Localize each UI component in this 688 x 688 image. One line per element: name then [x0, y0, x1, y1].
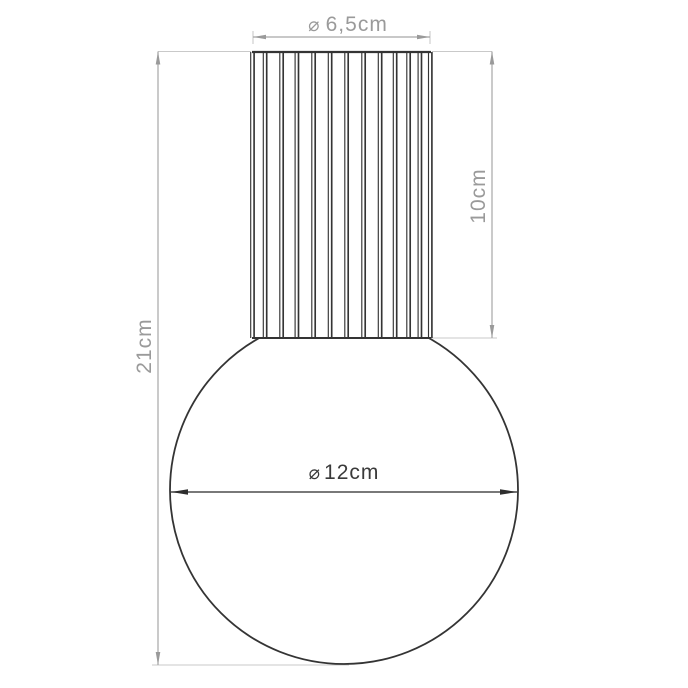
- shade-body-mask: [251, 44, 432, 337]
- arrow-bottom-shade-height: [490, 325, 495, 338]
- diameter-symbol: ⌀: [308, 14, 320, 36]
- label-shade-diameter: ⌀6,5cm: [308, 13, 388, 36]
- label-globe-diameter-value: 12cm: [324, 461, 379, 484]
- arrow-right-globe-diameter: [500, 489, 517, 495]
- label-total-height: 21cm: [133, 318, 156, 373]
- label-shade-height: 10cm: [467, 168, 490, 223]
- label-globe-diameter: ⌀12cm: [309, 461, 380, 484]
- technical-drawing-canvas: ⌀6,5cm 10cm 21cm ⌀12cm: [0, 0, 688, 688]
- arrow-right-shade-diameter: [417, 35, 430, 40]
- globe-outline: [170, 316, 518, 664]
- arrow-left-globe-diameter: [171, 489, 188, 495]
- lamp-dimension-drawing: ⌀6,5cm 10cm 21cm ⌀12cm: [0, 0, 688, 688]
- arrow-top-total-height: [156, 52, 161, 65]
- arrow-top-shade-height: [490, 52, 495, 65]
- arrow-left-shade-diameter: [253, 35, 266, 40]
- label-shade-diameter-value: 6,5cm: [326, 13, 388, 36]
- arrow-bottom-total-height: [156, 652, 161, 665]
- diameter-symbol: ⌀: [309, 462, 321, 484]
